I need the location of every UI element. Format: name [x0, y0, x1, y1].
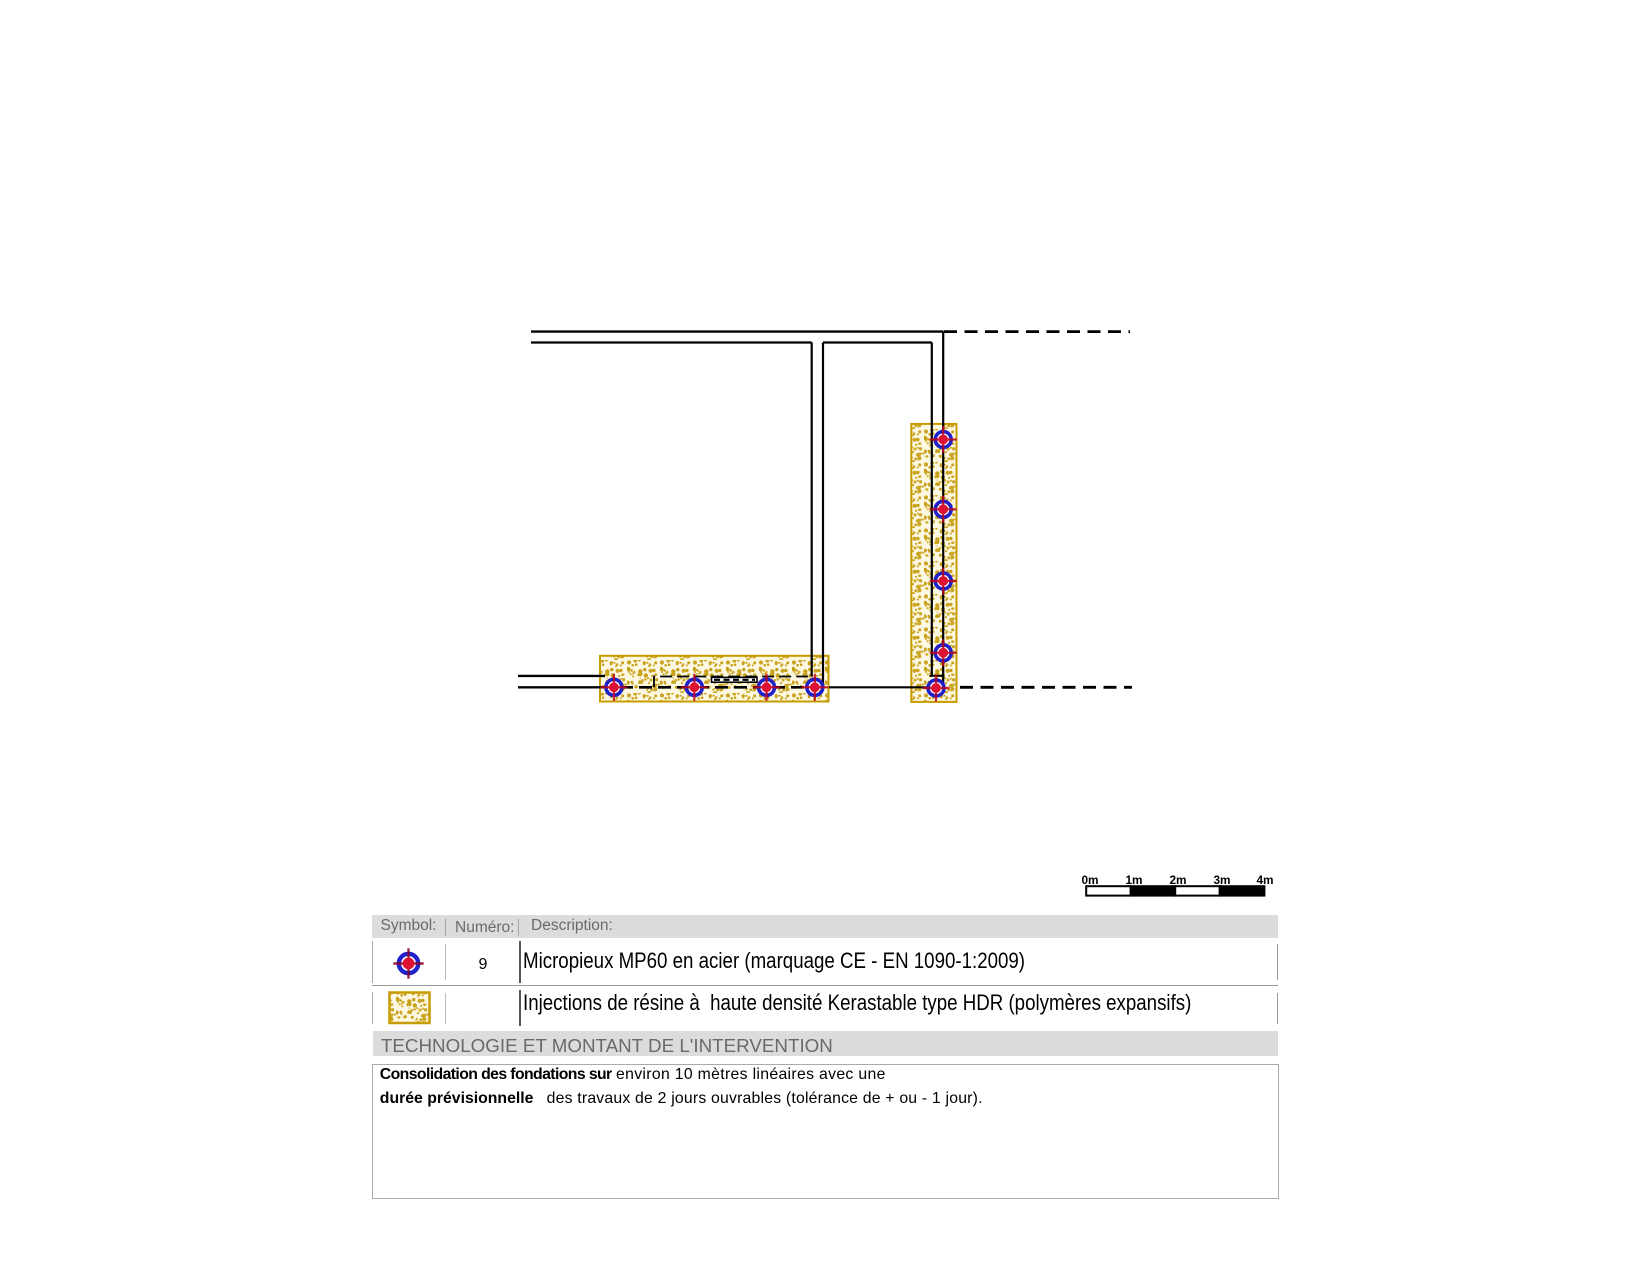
svg-text:4m: 4m [1256, 873, 1273, 887]
svg-text:0m: 0m [1081, 873, 1098, 887]
svg-text:2m: 2m [1169, 873, 1186, 887]
svg-text:1m: 1m [1125, 873, 1142, 887]
svg-text:3m: 3m [1213, 873, 1230, 887]
